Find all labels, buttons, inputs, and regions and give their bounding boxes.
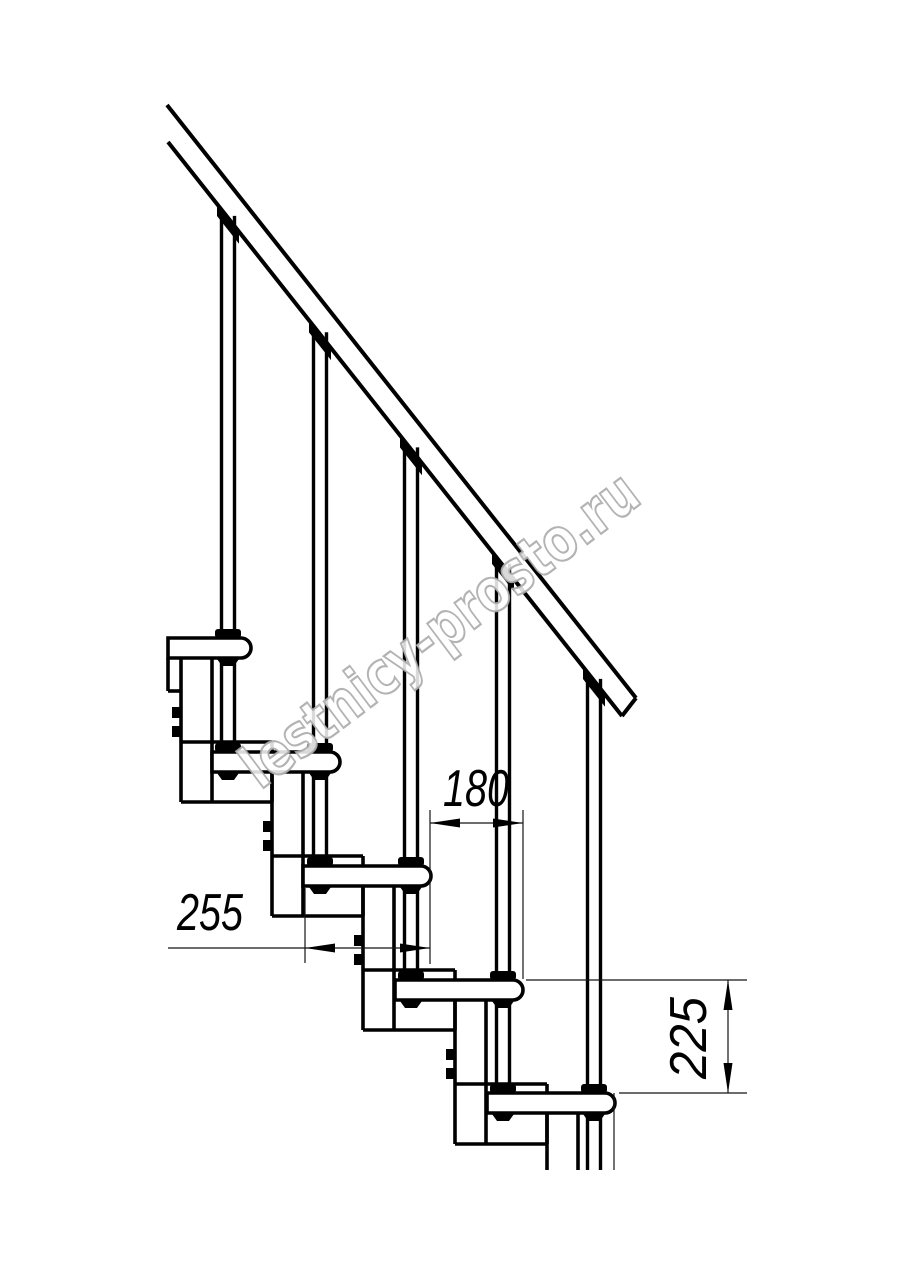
baluster-collar [398, 971, 424, 980]
dimension-label-225: 225 [660, 996, 718, 1080]
dimension-arrow [724, 1063, 733, 1093]
tread [395, 980, 523, 1000]
module-bolt-tab [446, 1049, 455, 1060]
module-bolt-tab [172, 726, 181, 737]
module-bolt-tab [446, 1068, 455, 1079]
handrail-top-line [167, 105, 636, 698]
dimension-label-255: 255 [176, 884, 244, 942]
module-bolt-tab [172, 707, 181, 718]
baluster-collar [581, 1084, 607, 1093]
tread [303, 866, 431, 886]
staircase-drawing-page: 180 255 225 lestnicy-prosto.ru [0, 0, 914, 1280]
dimension-labels: 180 255 225 [176, 760, 718, 1080]
module-bolt-tab [263, 840, 272, 851]
module-bolt-tab [354, 935, 363, 946]
baluster-nut [492, 1114, 514, 1121]
baluster-collar [215, 629, 241, 638]
baluster-nut [217, 773, 239, 780]
module-bolt-tab [354, 954, 363, 965]
tread [168, 638, 251, 658]
dimension-label-180: 180 [443, 760, 509, 818]
baluster-nut [400, 1001, 422, 1008]
baluster-collar [490, 1084, 516, 1093]
dimension-arrow [724, 980, 733, 1010]
baluster-collar [398, 857, 424, 866]
tread [487, 1093, 615, 1113]
staircase-technical-drawing: 180 255 225 lestnicy-prosto.ru [0, 0, 914, 1280]
module-bolt-tab [263, 821, 272, 832]
baluster-collar [307, 857, 333, 866]
handrail-end-cap [622, 698, 636, 716]
dimension-arrow [400, 944, 430, 953]
baluster-nut [309, 887, 331, 894]
baluster-collar [490, 971, 516, 980]
dimension-arrow [430, 819, 460, 828]
dimension-arrow [305, 944, 335, 953]
